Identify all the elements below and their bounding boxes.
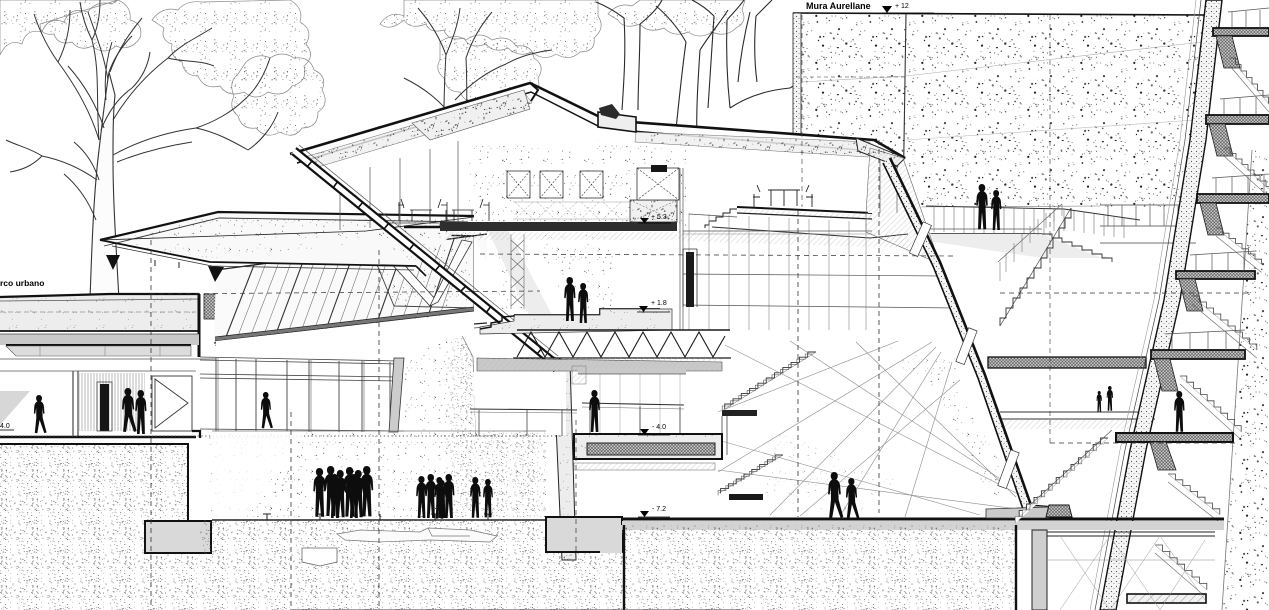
svg-text:+ 5.3: + 5.3 xyxy=(651,214,667,221)
svg-text:Mura Aurellane: Mura Aurellane xyxy=(806,1,871,11)
svg-text:+ 1.8: + 1.8 xyxy=(651,300,667,307)
svg-text:- 7.2: - 7.2 xyxy=(652,506,666,513)
svg-text:+ 12: + 12 xyxy=(895,3,909,10)
svg-text:4.0: 4.0 xyxy=(0,423,10,430)
svg-text:rco urbano: rco urbano xyxy=(0,278,44,288)
svg-text:- 4.0: - 4.0 xyxy=(652,424,666,431)
